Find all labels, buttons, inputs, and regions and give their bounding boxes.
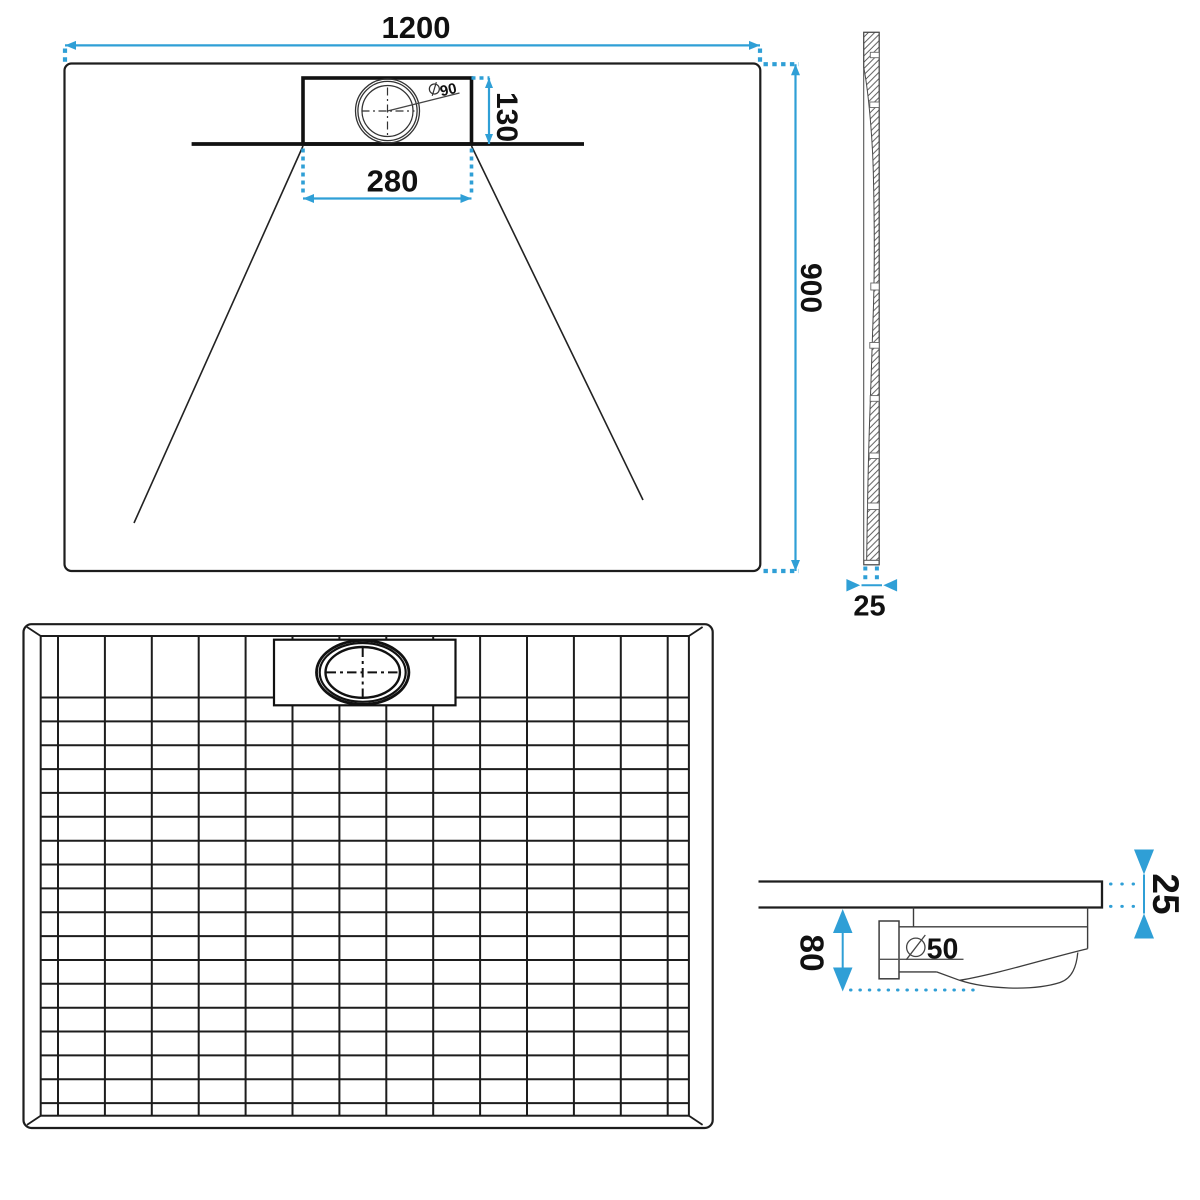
svg-text:900: 900 [794, 263, 827, 313]
svg-text:50: 50 [927, 934, 959, 966]
svg-text:80: 80 [793, 934, 830, 971]
svg-text:25: 25 [853, 591, 885, 623]
svg-text:1200: 1200 [382, 10, 451, 45]
svg-text:130: 130 [490, 92, 523, 142]
svg-text:280: 280 [367, 164, 419, 199]
svg-text:90: 90 [438, 80, 458, 100]
svg-text:25: 25 [1145, 873, 1186, 914]
